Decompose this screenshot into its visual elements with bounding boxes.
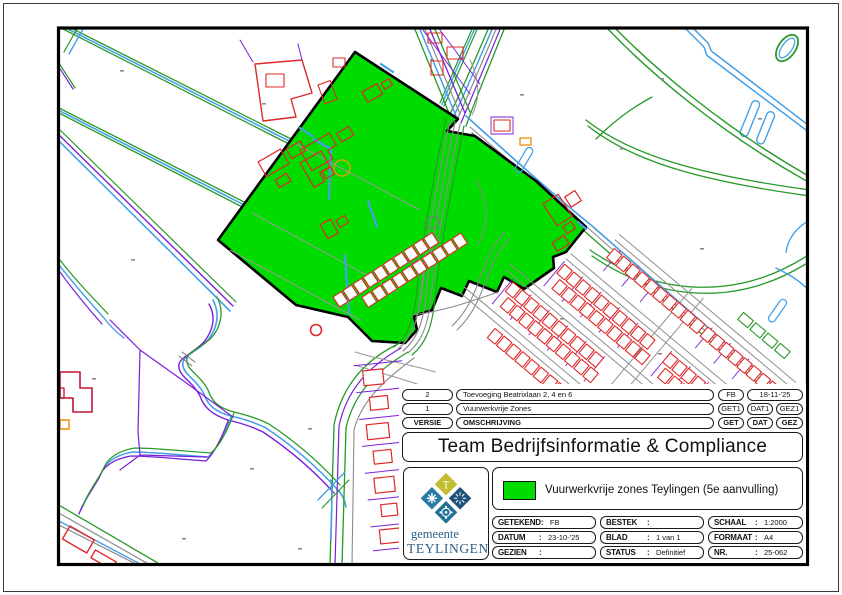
field-schaal: SCHAAL : 1:2000 [708, 516, 803, 529]
legend-box: Vuurwerkvrije zones Teylingen (5e aanvul… [492, 467, 803, 510]
revision-1-dat: DAT1 [747, 403, 773, 415]
municipality-logo-box: T gemeente TEYLINGEN [403, 467, 489, 560]
revision-2-dat: 18-11-'25 [747, 389, 803, 401]
svg-text:T: T [443, 479, 450, 491]
field-status: STATUS : Definitief [600, 546, 704, 559]
logo-caption-gemeente: gemeente [411, 527, 459, 542]
sheet-title: Team Bedrijfsinformatie & Compliance [438, 436, 767, 458]
title-block: 2 Toevoeging Beatrixlaan 2, 4 en 6 FB 18… [399, 384, 806, 563]
field-getekend: GETEKEND : FB [492, 516, 596, 529]
logo-caption-teylingen: TEYLINGEN [407, 541, 489, 557]
legend-zone-swatch [503, 481, 536, 500]
revision-2-omschrijving: Toevoeging Beatrixlaan 2, 4 en 6 [456, 389, 714, 401]
revision-header-get: GET [718, 417, 744, 429]
revision-header-gez: GEZ [776, 417, 803, 429]
field-blad: BLAD : 1 van 1 [600, 531, 704, 544]
field-nr: NR. : 25-062 [708, 546, 803, 559]
revision-1-versie: 1 [402, 403, 453, 415]
layer-ne-waterways [586, 25, 812, 323]
revision-header-versie: VERSIE [402, 417, 453, 429]
teylingen-logo-icon: T [416, 472, 476, 532]
field-datum: DATUM : 23-10-'25 [492, 531, 596, 544]
field-bestek: BESTEK : [600, 516, 704, 529]
field-gezien: GEZIEN : [492, 546, 596, 559]
legend-label: Vuurwerkvrije zones Teylingen (5e aanvul… [545, 468, 778, 511]
revision-header-dat: DAT [747, 417, 773, 429]
revision-1-gez: GEZ1 [776, 403, 803, 415]
field-formaat: FORMAAT : A4 [708, 531, 803, 544]
map-sheet-page: 2 Toevoeging Beatrixlaan 2, 4 en 6 FB 18… [0, 0, 842, 595]
revision-2-versie: 2 [402, 389, 453, 401]
revision-1-omschrijving: Vuurwerkvrije Zones [456, 403, 714, 415]
revision-2-get: FB [718, 389, 744, 401]
sheet-title-box: Team Bedrijfsinformatie & Compliance [402, 432, 803, 462]
revision-1-get: GET1 [718, 403, 744, 415]
layer-firework-free-zone [218, 52, 592, 355]
revision-header-omschrijving: OMSCHRIJVING [456, 417, 714, 429]
